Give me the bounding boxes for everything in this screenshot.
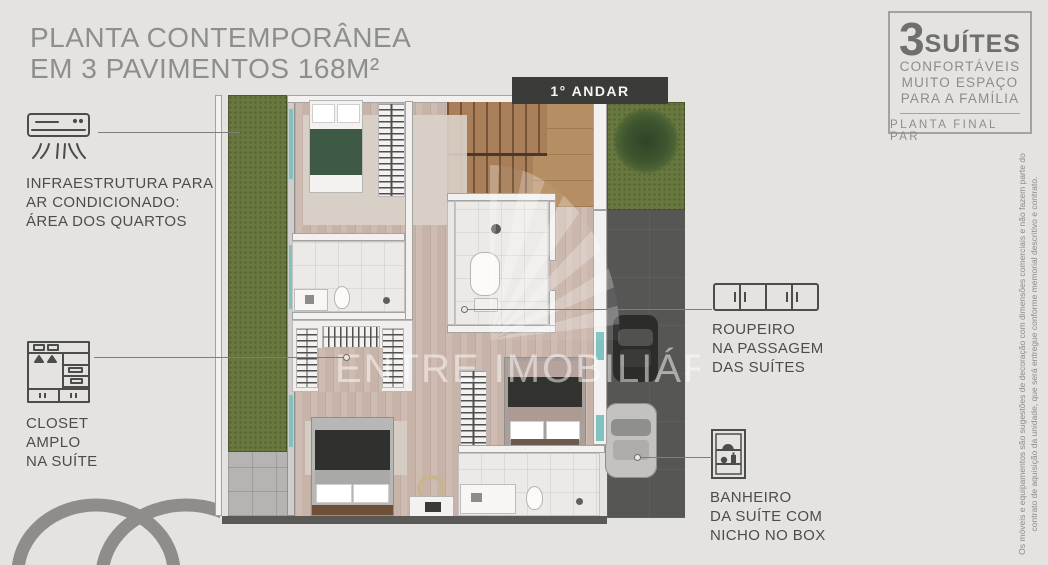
shower-drain (383, 297, 390, 304)
side-garden-grass (228, 95, 287, 452)
annotation-line: NA PASSAGEM (712, 339, 824, 358)
bed-duvet-green (310, 129, 362, 175)
suites-badge: 3 SUÍTES CONFORTÁVEIS MUITO ESPAÇO PARA … (888, 11, 1032, 134)
annotation-roupeiro: ROUPEIRO NA PASSAGEM DAS SUÍTES (712, 282, 824, 377)
annotation-line: ROUPEIRO (712, 320, 824, 339)
floor-banner: 1° ANDAR (512, 77, 668, 104)
bed-pillow (547, 422, 579, 439)
badge-line: PARA A FAMÍLIA (901, 91, 1020, 107)
annotation-banheiro: BANHEIRO DA SUÍTE COM NICHO NO BOX (710, 428, 826, 545)
disclaimer: Os móveis e equipamentos são sugestões d… (1016, 145, 1042, 563)
badge-line: MUITO ESPAÇO (902, 75, 1019, 91)
bed-headboard-wood (312, 505, 393, 515)
badge-divider (900, 113, 1020, 114)
annotation-banheiro-label: BANHEIRO DA SUÍTE COM NICHO NO BOX (710, 488, 826, 545)
annotation-roupeiro-label: ROUPEIRO NA PASSAGEM DAS SUÍTES (712, 320, 824, 377)
annotation-line: BANHEIRO (710, 488, 826, 507)
annotation-line: INFRAESTRUTURA PARA (26, 174, 213, 193)
disclaimer-line2: contrato de aquisição da unidade, que se… (1028, 145, 1040, 563)
floorplan: ENTRE IMOBILIÁRIA (215, 85, 700, 530)
annotation-closet-label: CLOSET AMPLO NA SUÍTE (26, 414, 98, 471)
desk (410, 497, 453, 516)
leader-dot-roupeiro (461, 306, 468, 313)
interior-wall (292, 233, 405, 241)
shower-glass (447, 201, 455, 325)
leader-line-roupeiro (466, 309, 712, 310)
bed-pillow (313, 105, 334, 122)
annotation-line: DAS SUÍTES (712, 358, 824, 377)
wardrobe-closet-icon (26, 340, 92, 404)
bed-pillow (338, 105, 359, 122)
bathroom-1 (292, 241, 405, 312)
brand-logo-arches (0, 478, 220, 565)
bed-pillow (354, 485, 388, 502)
desk-object (425, 502, 441, 512)
fence-wall (215, 95, 222, 516)
toilet (527, 487, 542, 509)
bed-suite1 (310, 101, 362, 192)
car-windshield (618, 329, 653, 346)
closet-rack (296, 328, 318, 388)
leader-line-ac (98, 132, 240, 133)
annotation-line: CLOSET (26, 414, 98, 433)
roupeiro-doors-icon (712, 282, 820, 312)
closet-rack (378, 103, 405, 197)
annotation-line: AMPLO (26, 433, 98, 452)
closet-rack (322, 326, 380, 348)
interior-wall (458, 445, 605, 453)
annotation-ac-label: INFRAESTRUTURA PARA AR CONDICIONADO: ÁRE… (26, 174, 213, 231)
shower-drain (576, 498, 583, 505)
annotation-line: DA SUÍTE COM (710, 507, 826, 526)
disclaimer-line1: Os móveis e equipamentos são sugestões d… (1016, 145, 1028, 563)
bed-blanket (315, 470, 390, 485)
watermark-text: ENTRE IMOBILIÁRIA (335, 347, 700, 392)
badge-word: SUÍTES (925, 29, 1021, 59)
page-title-line1: PLANTA CONTEMPORÂNEA (30, 22, 411, 53)
badge-number: 3 (899, 19, 925, 59)
bed-pillow (317, 485, 351, 502)
annotation-closet: CLOSET AMPLO NA SUÍTE (26, 340, 98, 471)
window-glass (289, 109, 293, 179)
sink (305, 295, 314, 304)
leader-line-closet (94, 357, 346, 358)
lawn-tree (613, 108, 679, 174)
right-wall-north (593, 102, 607, 210)
annotation-line: AR CONDICIONADO: (26, 193, 213, 212)
annotation-line: NICHO NO BOX (710, 526, 826, 545)
annotation-ac: INFRAESTRUTURA PARA AR CONDICIONADO: ÁRE… (26, 110, 213, 231)
bath-counter (461, 485, 515, 513)
leader-dot-closet (343, 354, 350, 361)
bed-pillow (511, 422, 543, 439)
ac-unit-icon (26, 110, 92, 166)
bathroom-3 (458, 453, 600, 516)
leader-line-banheiro (639, 457, 712, 458)
toilet (335, 287, 349, 308)
shower-niche-icon (710, 428, 748, 480)
annotation-line: NA SUÍTE (26, 452, 98, 471)
badge-headline: 3 SUÍTES (899, 19, 1021, 59)
side-patio-concrete (228, 452, 287, 516)
car-windshield (611, 419, 651, 436)
window-glass (289, 395, 293, 447)
bed-blanket-mauve (508, 407, 582, 422)
bed-master (312, 418, 393, 515)
page-title-line2: EM 3 PAVIMENTOS 168M² (30, 53, 411, 84)
interior-wall (292, 312, 413, 320)
floor-banner-label: 1° ANDAR (550, 83, 629, 99)
window-glass (596, 415, 604, 441)
interior-wall (405, 101, 413, 320)
car-light (605, 403, 657, 478)
leader-dot-banheiro (634, 454, 641, 461)
page-title: PLANTA CONTEMPORÂNEA EM 3 PAVIMENTOS 168… (30, 22, 411, 84)
sink (471, 493, 482, 502)
badge-line: CONFORTÁVEIS (900, 59, 1021, 75)
flyer-canvas: PLANTA CONTEMPORÂNEA EM 3 PAVIMENTOS 168… (0, 0, 1048, 565)
bed-duvet-dark (315, 430, 390, 470)
bottom-wall (222, 516, 607, 524)
badge-footer: PLANTA FINAL PAR (890, 119, 1030, 143)
annotation-line: ÁREA DOS QUARTOS (26, 212, 213, 231)
